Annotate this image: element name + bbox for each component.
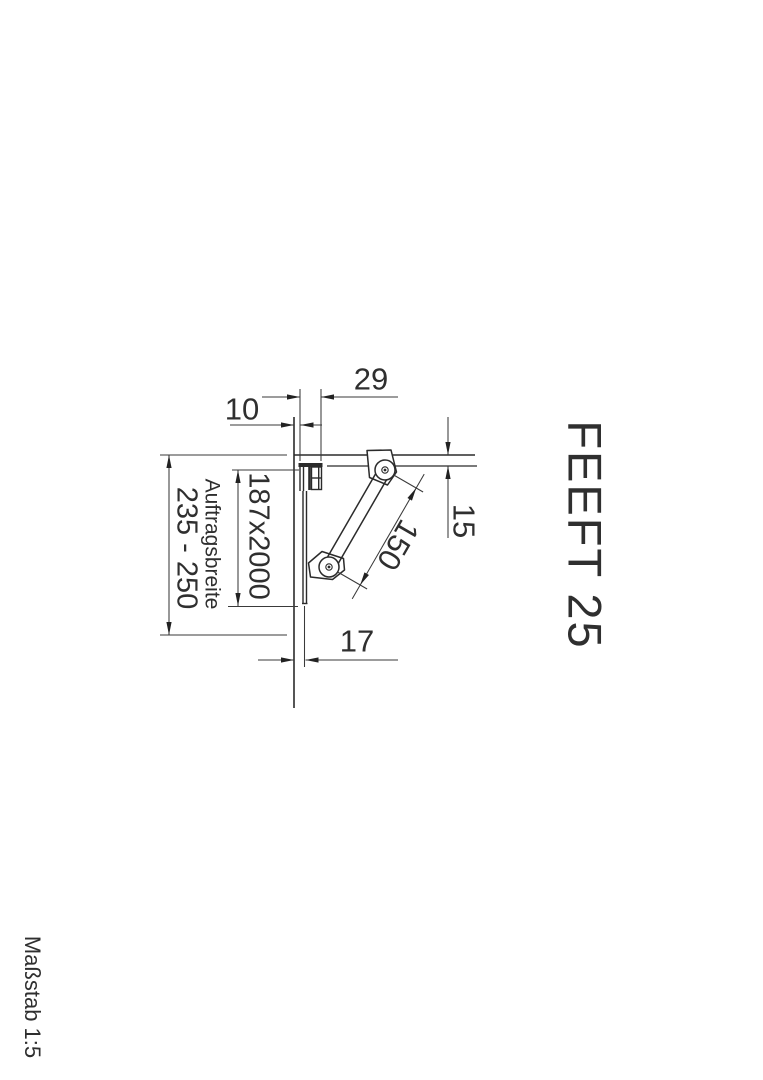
clip-profile bbox=[299, 463, 323, 491]
drawing-sheet: 29 10 15 150 17 235 - 250 Auftragsbreite… bbox=[0, 0, 763, 1080]
scale-label: Maßstab 1:5 bbox=[21, 936, 43, 1058]
dim-label-10: 10 bbox=[225, 394, 259, 425]
top-pivot bbox=[375, 460, 395, 480]
dim-label-application-width: Auftragsbreite bbox=[202, 479, 223, 610]
bottom-pivot bbox=[319, 557, 339, 577]
profile-leg bbox=[302, 491, 308, 604]
dim-label-17: 17 bbox=[340, 626, 374, 657]
dim-label-panel-size: 187x2000 bbox=[244, 472, 273, 599]
dim-label-range: 235 - 250 bbox=[172, 487, 201, 610]
product-title: FEEFT 25 bbox=[562, 420, 609, 649]
dim-label-15: 15 bbox=[449, 504, 480, 538]
dim-label-29: 29 bbox=[354, 364, 388, 395]
dim-17-lines bbox=[258, 606, 398, 667]
